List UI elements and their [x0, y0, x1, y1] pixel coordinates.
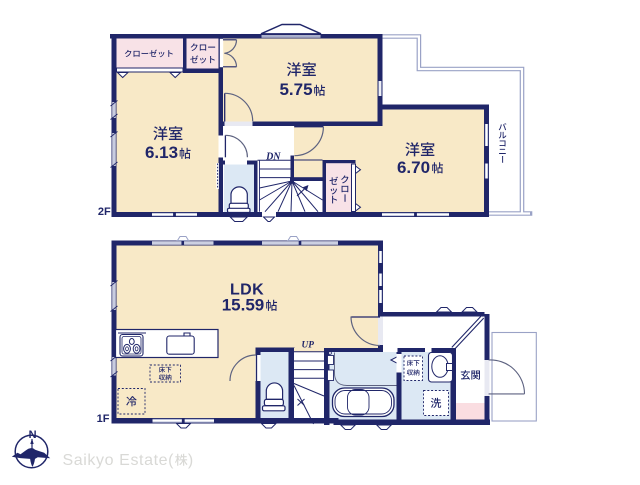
- svg-text:N: N: [29, 429, 37, 441]
- svg-text:DN: DN: [265, 152, 281, 163]
- svg-text:5.75: 5.75: [279, 80, 312, 99]
- svg-text:6.70: 6.70: [397, 158, 430, 177]
- svg-text:UP: UP: [301, 341, 314, 351]
- svg-text:1F: 1F: [97, 413, 110, 425]
- svg-text:Saikyo Estate(: Saikyo Estate(: [63, 452, 175, 469]
- svg-text:15.59: 15.59: [222, 296, 265, 315]
- svg-text:2F: 2F: [98, 206, 111, 218]
- svg-text:6.13: 6.13: [145, 143, 178, 162]
- svg-text:): ): [188, 452, 193, 469]
